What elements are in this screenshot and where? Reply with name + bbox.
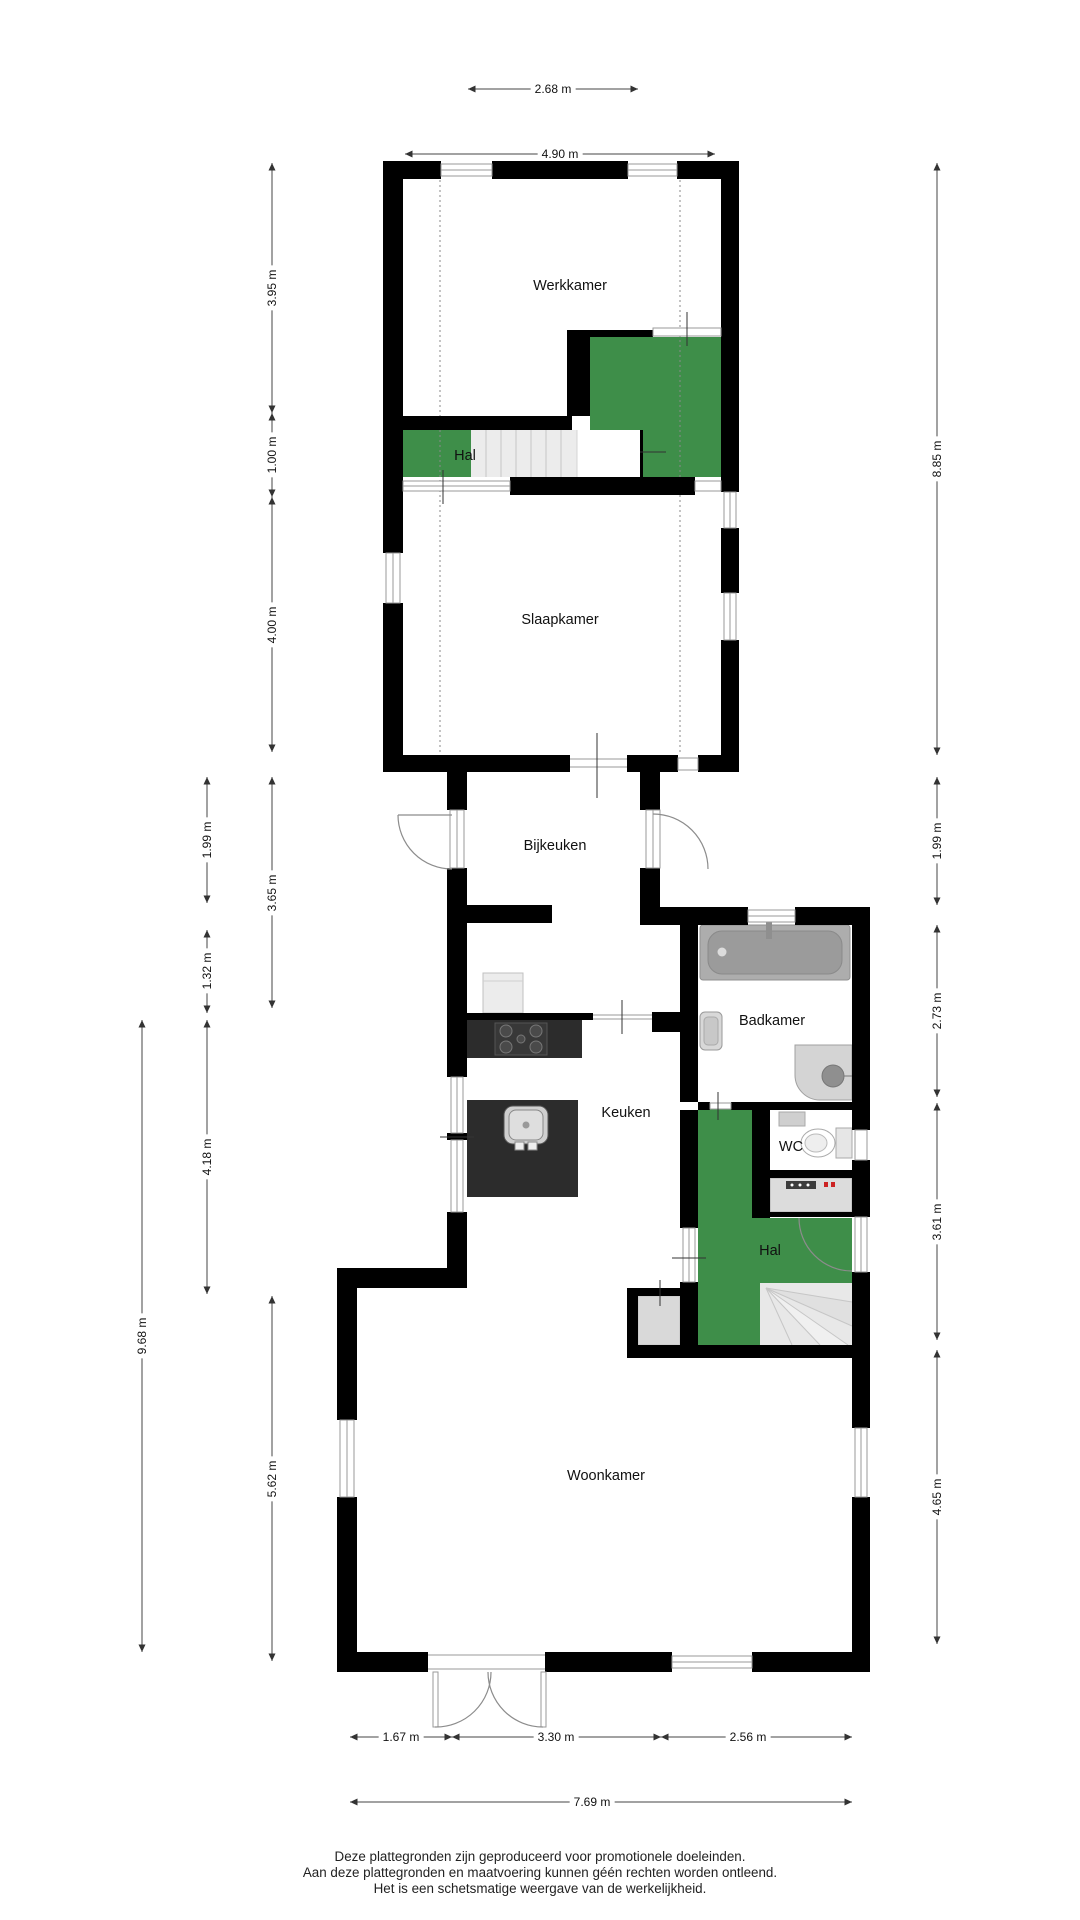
dimension-label: 9.68 m	[135, 1314, 149, 1359]
dimension-label: 7.69 m	[570, 1795, 615, 1809]
washbasin-bowl	[704, 1017, 718, 1045]
wall-segment	[752, 1108, 770, 1218]
stair-edge-line	[640, 430, 643, 477]
wall-segment	[721, 528, 739, 593]
wall-segment	[652, 1012, 698, 1032]
dimension-label: 8.85 m	[930, 437, 944, 482]
wall-segment	[698, 1102, 710, 1110]
wall-segment	[752, 1212, 852, 1217]
room-label-badkamer: Badkamer	[739, 1013, 805, 1029]
window	[678, 758, 698, 770]
toilet-tank	[836, 1128, 852, 1158]
sink-tap	[515, 1142, 524, 1150]
wall-segment	[567, 330, 590, 416]
dimension-label: 2.68 m	[531, 82, 576, 96]
disclaimer: Deze plattegronden zijn geproduceerd voo…	[90, 1849, 990, 1896]
room-label-woonkamer: Woonkamer	[567, 1468, 645, 1484]
wall-segment	[383, 161, 403, 553]
wall-segment	[680, 1032, 698, 1102]
wall-segment	[447, 1212, 467, 1268]
bathtub-basin	[708, 931, 842, 974]
wall-segment	[852, 1160, 870, 1217]
wall-segment	[510, 477, 695, 495]
floorplan-canvas: Werkkamer Hal Slaapkamer Bijkeuken Keuke…	[0, 0, 1080, 1920]
dimension-label: 1.00 m	[265, 433, 279, 478]
bathtub-drain-icon	[718, 948, 727, 957]
fixtures	[467, 921, 852, 1212]
dimension-label: 3.30 m	[534, 1730, 579, 1744]
dimension-label: 1.99 m	[930, 819, 944, 864]
interior-window	[695, 481, 721, 491]
wall-segment	[467, 1013, 593, 1020]
room-label-werkkamer: Werkkamer	[533, 278, 607, 294]
door-leaf	[541, 1672, 546, 1727]
sink-tap	[528, 1142, 537, 1150]
wall-segment	[492, 161, 628, 179]
wall-segment	[721, 640, 739, 772]
burner-icon	[530, 1041, 542, 1053]
disclaimer-line: Het is een schetsmatige weergave van de …	[90, 1881, 990, 1897]
burner-icon	[530, 1025, 542, 1037]
wall-segment	[640, 772, 660, 810]
dimension-label: 5.62 m	[265, 1457, 279, 1502]
wall-segment	[337, 1288, 357, 1420]
room-label-keuken: Keuken	[601, 1105, 650, 1121]
bathtub-tap	[766, 921, 772, 939]
burner-icon	[517, 1035, 525, 1043]
wall-segment	[852, 1497, 870, 1672]
toilet-bowl	[805, 1134, 827, 1152]
wall-segment	[383, 603, 403, 772]
wall-segment	[545, 1652, 672, 1672]
dimension-label: 1.32 m	[200, 949, 214, 994]
wall-segment	[638, 1288, 680, 1296]
wall-segment	[731, 1102, 852, 1110]
fridge	[483, 973, 523, 1013]
indicator-red-icon	[831, 1182, 835, 1187]
dimension-label: 3.61 m	[930, 1200, 944, 1245]
wall-segment	[627, 1345, 870, 1358]
wall-segment	[447, 905, 467, 1077]
disclaimer-line: Aan deze plattegronden en maatvoering ku…	[90, 1865, 990, 1881]
wall-segment	[337, 1652, 428, 1672]
sink-drain-icon	[523, 1122, 530, 1129]
dimension-label: 4.65 m	[930, 1475, 944, 1520]
wall-segment	[447, 772, 467, 810]
dimension-label: 4.90 m	[538, 147, 583, 161]
wall-segment	[383, 755, 570, 772]
vestibule-floor	[638, 1296, 680, 1345]
room-label-bijkeuken: Bijkeuken	[524, 838, 587, 854]
dimension-label: 1.99 m	[200, 818, 214, 863]
wall-segment	[721, 161, 739, 492]
door-swing-arc	[398, 815, 452, 869]
wall-segment	[640, 868, 660, 925]
control-dot-icon	[791, 1184, 794, 1187]
wall-segment	[337, 1497, 357, 1672]
wall-segment	[447, 868, 467, 905]
burner-icon	[500, 1041, 512, 1053]
room-label-slaapkamer: Slaapkamer	[521, 612, 598, 628]
room-label-wc: WC	[779, 1139, 803, 1155]
wall-segment	[680, 1110, 698, 1228]
dimension-label: 3.95 m	[265, 266, 279, 311]
wall-segment	[680, 1282, 698, 1345]
door-leaf	[433, 1672, 438, 1727]
indicator-red-icon	[824, 1182, 828, 1187]
window	[855, 1130, 867, 1160]
wall-segment	[590, 330, 653, 337]
cistern	[779, 1112, 805, 1126]
wall-segment	[752, 1170, 852, 1178]
wall-segment	[852, 907, 870, 1130]
control-dot-icon	[799, 1184, 802, 1187]
control-dot-icon	[807, 1184, 810, 1187]
dimension-label: 4.18 m	[200, 1135, 214, 1180]
burner-icon	[500, 1025, 512, 1037]
dimension-label: 1.67 m	[379, 1730, 424, 1744]
wall-segment	[627, 1288, 638, 1345]
wall-segment	[660, 907, 748, 925]
door-swing-arc	[435, 1672, 491, 1727]
shower-drain-icon	[822, 1065, 844, 1087]
door-swing-arc	[488, 1672, 543, 1727]
room-label-hal: Hal	[759, 1243, 781, 1259]
wall-segment	[403, 416, 572, 430]
dimension-label: 2.73 m	[930, 989, 944, 1034]
dimension-label: 4.00 m	[265, 603, 279, 648]
wall-segment	[698, 755, 739, 772]
door-swing-arc	[653, 814, 708, 869]
wall-segment	[337, 1268, 467, 1288]
disclaimer-line: Deze plattegronden zijn geproduceerd voo…	[90, 1849, 990, 1865]
room-label-hal-upper: Hal	[454, 448, 476, 464]
wall-segment	[627, 755, 678, 772]
dimension-label: 3.65 m	[265, 871, 279, 916]
dimension-label: 2.56 m	[726, 1730, 771, 1744]
opening	[710, 1103, 731, 1109]
wall-segment	[680, 925, 698, 1013]
